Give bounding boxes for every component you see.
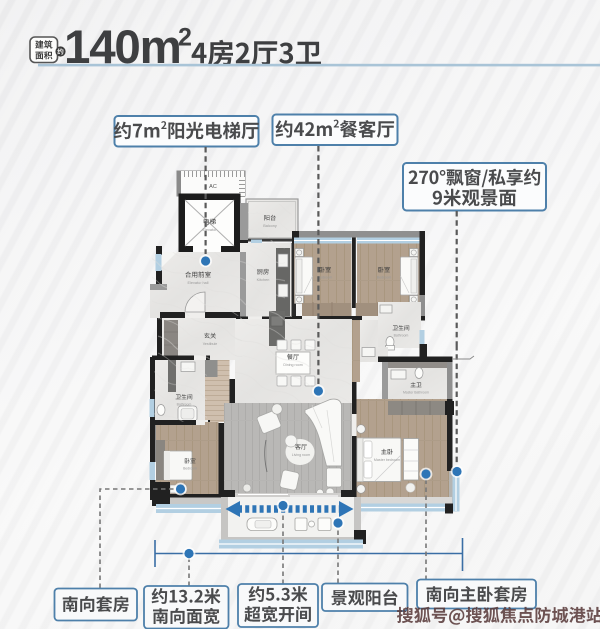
svg-text:Bedroom: Bedroom (183, 467, 197, 471)
svg-text:Bedroom: Bedroom (377, 276, 392, 280)
svg-text:AC: AC (209, 184, 217, 190)
svg-text:Bathroom: Bathroom (394, 334, 409, 338)
svg-text:Master Bathroom: Master Bathroom (403, 391, 429, 395)
svg-text:2: 2 (178, 24, 192, 52)
svg-text:Bedroom: Bedroom (318, 276, 333, 280)
svg-text:Master bedroom: Master bedroom (374, 458, 400, 462)
svg-text:Living room: Living room (292, 453, 311, 457)
